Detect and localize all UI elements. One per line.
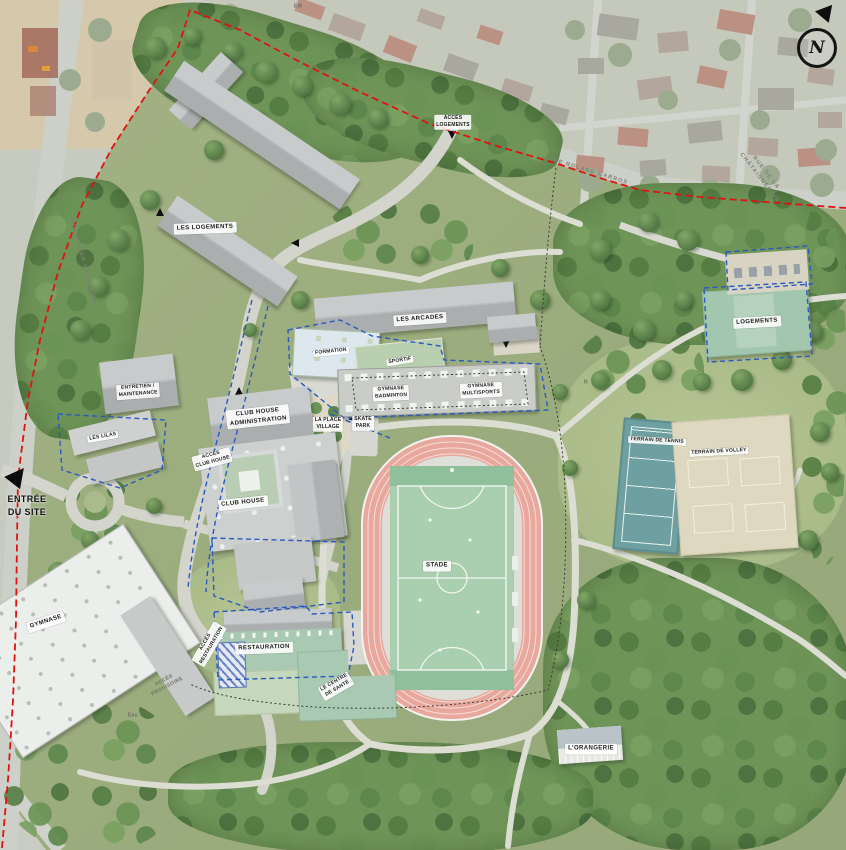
courtyard-skylight — [238, 470, 260, 492]
label-n-point: N — [581, 378, 591, 387]
tree-canopy — [291, 291, 309, 309]
context-house — [807, 66, 835, 85]
context-house — [617, 127, 648, 148]
context-house — [578, 58, 604, 74]
context-house — [597, 13, 640, 40]
context-tree — [85, 112, 105, 132]
building-club-house-east — [287, 459, 344, 542]
building-arcades-annex — [487, 313, 537, 343]
forest-south — [168, 742, 593, 850]
site-entrance-arrow-icon — [4, 462, 31, 489]
context-tree — [788, 8, 812, 32]
context-house — [702, 165, 731, 182]
access-arrow-icon — [156, 208, 164, 216]
north-arrow-icon — [815, 0, 839, 23]
context-tree — [59, 69, 81, 91]
label-em: EM — [291, 2, 305, 11]
label-restauration: RESTAURATION — [235, 642, 293, 655]
context-house — [416, 8, 445, 30]
context-house — [797, 147, 830, 167]
compass-letter: N — [809, 38, 825, 58]
label-street-top: RUE ROLAND GARROS — [544, 154, 632, 189]
context-house — [758, 88, 794, 110]
label-gymnase-badminton: GYMNASE BADMINTON — [373, 385, 410, 401]
building-gymnase-hall — [337, 363, 537, 418]
tree-canopy — [204, 140, 224, 160]
access-arrow-icon — [291, 239, 299, 247]
label-gymnase-multisports: GYMNASE MULTISPORTS — [460, 382, 502, 399]
context-tree — [719, 39, 741, 61]
volley-courts — [671, 414, 798, 556]
context-tree — [750, 110, 770, 130]
tree-canopy — [146, 498, 162, 514]
tree-canopy — [491, 259, 509, 277]
context-house — [696, 65, 727, 88]
forest-mid-east — [578, 328, 704, 420]
context-house — [717, 9, 756, 35]
volley-court-1 — [687, 457, 729, 488]
label-la-place-village: LA PLACE VILLAGE — [313, 417, 343, 432]
parked-cars — [734, 264, 801, 279]
context-tree — [565, 20, 585, 40]
forest-north-arcades — [328, 198, 473, 280]
tree-canopy — [243, 323, 257, 337]
context-house — [639, 159, 666, 177]
north-compass-icon: N — [797, 28, 837, 68]
context-house — [637, 76, 673, 101]
label-entretien-maintenance: ENTRETIEN / MAINTENANCE — [116, 382, 160, 399]
logements-courtyard — [725, 249, 810, 295]
context-house — [818, 112, 842, 128]
volley-court-4 — [744, 502, 786, 533]
context-tree — [810, 173, 834, 197]
restauration-skylights — [219, 630, 337, 639]
label-orangerie: L'ORANGERIE — [565, 744, 617, 755]
tree-canopy — [140, 190, 160, 210]
label-eau: Eau — [125, 711, 141, 720]
context-tree — [658, 90, 678, 110]
context-house — [657, 31, 689, 54]
site-plan-map: LES LOGEMENTS LES ARCADES FORMATION SPOR… — [0, 0, 846, 850]
context-house — [383, 35, 418, 63]
context-house — [687, 120, 723, 143]
volley-court-2 — [739, 456, 781, 487]
context-tree — [608, 43, 632, 67]
context-house — [476, 25, 503, 46]
label-les-logements: LES LOGEMENTS — [174, 222, 237, 235]
building-logements-bar2 — [157, 196, 297, 307]
label-stade: STADE — [423, 561, 451, 572]
context-tree — [815, 139, 837, 161]
tree-canopy — [530, 290, 550, 310]
label-skate-park: SKATE PARK — [352, 416, 374, 431]
volley-court-3 — [692, 503, 734, 534]
label-acces-logements: ACCÈS LOGEMENTS — [434, 115, 471, 130]
context-tree — [88, 18, 112, 42]
label-entree-du-site: ENTRÉE DU SITE — [5, 492, 50, 520]
gym-window-row-top — [344, 368, 528, 381]
